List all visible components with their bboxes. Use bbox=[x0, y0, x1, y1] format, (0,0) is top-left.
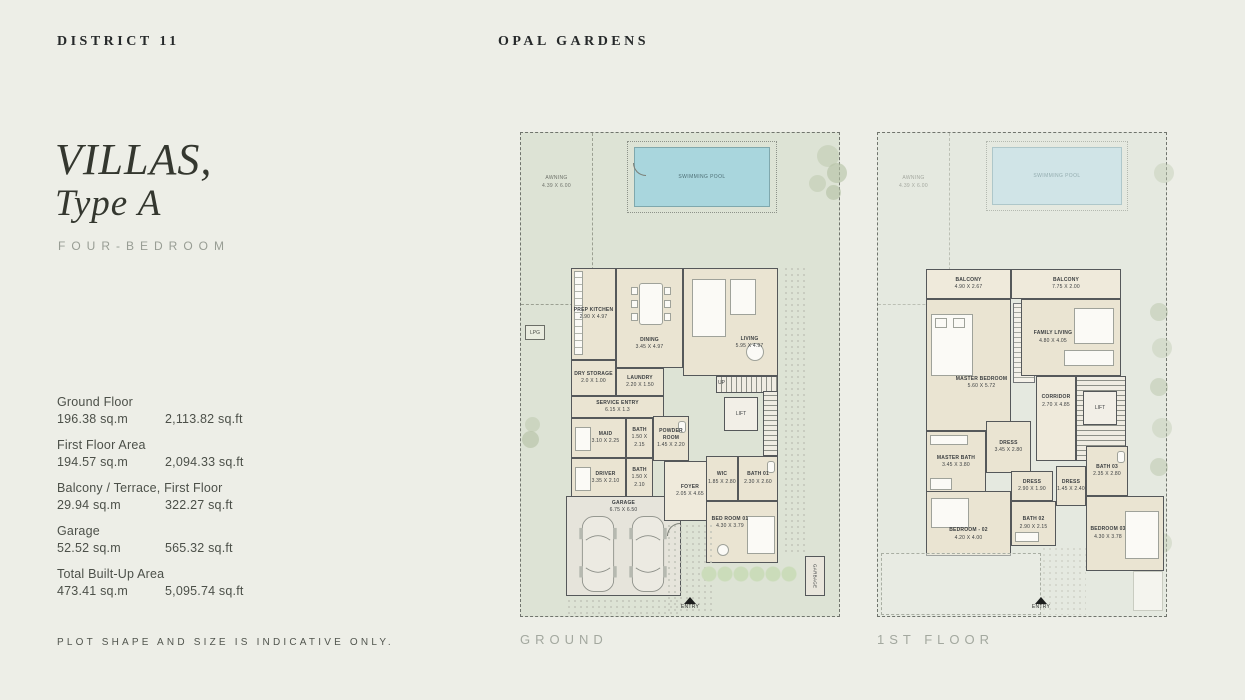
toilet bbox=[1117, 451, 1125, 463]
stairs bbox=[763, 391, 778, 456]
first-floor-caption: 1ST FLOOR bbox=[877, 632, 994, 647]
awning-dim: 4.39 X 6.00 bbox=[542, 183, 571, 189]
room-label: BED ROOM 01 bbox=[712, 516, 749, 523]
tree-icon bbox=[525, 417, 540, 432]
room-bath03: BATH 032.35 X 2.80 bbox=[1086, 446, 1128, 496]
room-dim: 1.50 X 2.10 bbox=[627, 474, 652, 489]
room-dim: 4.80 X 4.05 bbox=[1034, 338, 1072, 345]
room-dim: 7.75 X 2.00 bbox=[1052, 284, 1080, 291]
lift: LIFT bbox=[724, 397, 758, 431]
sofa bbox=[692, 279, 726, 337]
room-bedroom01: BED ROOM 014.30 X 3.79 bbox=[706, 501, 778, 563]
tree-icon bbox=[809, 175, 826, 192]
room-dim: 3.45 X 4.97 bbox=[636, 344, 664, 351]
room-label: SERVICE ENTRY bbox=[596, 400, 639, 407]
room-dress-master: DRESS3.45 X 2.80 bbox=[986, 421, 1031, 473]
room-dim: 1.45 X 2.40 bbox=[1057, 486, 1085, 493]
room-label: BALCONY bbox=[955, 277, 983, 284]
lift: LIFT bbox=[1083, 391, 1117, 425]
room-dim: 6.15 X 1.3 bbox=[596, 407, 639, 414]
room-label: LAUNDRY bbox=[626, 375, 654, 382]
room-bath01: BATH 012.30 X 2.60 bbox=[738, 456, 778, 501]
room-bedroom03: BEDROOM 034.30 X 3.78 bbox=[1086, 496, 1164, 571]
terrace-zone bbox=[881, 553, 1041, 615]
room-dim: 2.0 X 1.00 bbox=[574, 378, 613, 385]
room-bath02: BATH 022.90 X 2.15 bbox=[1011, 501, 1056, 546]
room-dim: 2.90 X 2.15 bbox=[1020, 524, 1048, 531]
swimming-pool-faded: SWIMMING POOL bbox=[992, 147, 1122, 205]
room-wic: WIC1.85 X 2.80 bbox=[706, 456, 738, 501]
room-balcony-right: BALCONY7.75 X 2.00 bbox=[1011, 269, 1121, 299]
room-label: BALCONY bbox=[1052, 277, 1080, 284]
room-label: DRESS bbox=[1018, 479, 1046, 486]
area-sqft: 2,113.82 sq.ft bbox=[165, 412, 243, 426]
entry-arrow-icon bbox=[684, 597, 696, 604]
stairs-up-label: UP bbox=[718, 380, 725, 386]
sofa bbox=[730, 279, 756, 315]
entry-label: ENTRY bbox=[1026, 604, 1056, 610]
disclaimer-note: PLOT SHAPE AND SIZE IS INDICATIVE ONLY. bbox=[57, 637, 394, 648]
dining-chair bbox=[631, 313, 638, 321]
room-master-bedroom: MASTER BEDROOM5.60 X 5.72 bbox=[926, 299, 1011, 431]
area-sqm: 29.94 sq.m bbox=[57, 497, 165, 514]
room-label: LIVING bbox=[736, 336, 764, 343]
dining-chair bbox=[664, 313, 671, 321]
area-label: Ground Floor bbox=[57, 394, 387, 411]
room-laundry: LAUNDRY2.20 X 1.50 bbox=[616, 368, 664, 396]
room-living: LIVING5.95 X 4.97 bbox=[683, 268, 778, 376]
bedroom-subtitle: FOUR-BEDROOM bbox=[58, 239, 230, 253]
room-label: BATH 01 bbox=[744, 471, 772, 478]
swimming-pool: SWIMMING POOL bbox=[634, 147, 770, 207]
awning-label: AWNING bbox=[545, 175, 567, 181]
driveway bbox=[566, 598, 681, 616]
roof-pad bbox=[1133, 571, 1163, 611]
room-master-bath: MASTER BATH3.45 X 3.80 bbox=[926, 431, 986, 493]
dining-chair bbox=[664, 300, 671, 308]
room-bath-maid: BATH1.50 X 2.15 bbox=[626, 418, 653, 458]
room-label: BATH bbox=[627, 427, 652, 434]
dining-table bbox=[639, 283, 663, 325]
tv-console bbox=[1064, 350, 1114, 366]
room-maid: MAID3.10 X 2.25 bbox=[571, 418, 626, 458]
room-label: MASTER BEDROOM bbox=[956, 376, 1007, 383]
tree-icon bbox=[827, 163, 847, 183]
room-dim: 3.35 X 2.10 bbox=[592, 478, 620, 485]
room-corridor: CORRIDOR2.70 X 4.85 bbox=[1036, 376, 1076, 461]
area-sqm: 196.38 sq.m bbox=[57, 411, 165, 428]
area-group-ground: Ground Floor 196.38 sq.m2,113.82 sq.ft bbox=[57, 394, 387, 428]
tree-icon bbox=[1152, 418, 1172, 438]
chair bbox=[717, 544, 729, 556]
room-service-entry: SERVICE ENTRY6.15 X 1.3 bbox=[571, 396, 664, 418]
pillow bbox=[935, 318, 947, 328]
awning-label: AWNING bbox=[902, 175, 924, 181]
garbage-label: GARBAGE bbox=[813, 564, 818, 588]
room-dim: 3.45 X 2.80 bbox=[995, 447, 1023, 454]
villa-title: VILLAS, Type A bbox=[55, 138, 212, 226]
room-dim: 4.90 X 2.67 bbox=[955, 284, 983, 291]
room-dress-02: DRESS2.90 X 1.90 bbox=[1011, 471, 1053, 501]
room-dim: 1.50 X 2.15 bbox=[627, 434, 652, 449]
first-floor-plan: AWNING 4.39 X 6.00 SWIMMING POOL BALCONY… bbox=[877, 132, 1167, 617]
car-icon bbox=[627, 514, 669, 594]
tree-icon bbox=[826, 185, 841, 200]
area-summary: Ground Floor 196.38 sq.m2,113.82 sq.ft F… bbox=[57, 394, 387, 609]
tree-icon bbox=[1152, 338, 1172, 358]
room-balcony-left: BALCONY4.90 X 2.67 bbox=[926, 269, 1011, 299]
area-group-balcony: Balcony / Terrace, First Floor 29.94 sq.… bbox=[57, 480, 387, 514]
area-sqft: 565.32 sq.ft bbox=[165, 541, 233, 555]
room-label: GARAGE bbox=[610, 500, 638, 507]
room-label: MASTER BATH bbox=[937, 455, 975, 462]
room-label: POWDER ROOM bbox=[654, 428, 688, 443]
room-dim: 2.30 X 2.60 bbox=[744, 479, 772, 486]
room-dim: 1.45 X 2.20 bbox=[654, 442, 688, 449]
bed bbox=[747, 516, 775, 554]
lift-label: LIFT bbox=[736, 411, 746, 417]
area-sqft: 322.27 sq.ft bbox=[165, 498, 233, 512]
area-sqft: 5,095.74 sq.ft bbox=[165, 584, 244, 598]
room-label: WIC bbox=[708, 471, 736, 478]
room-driver: DRIVER3.35 X 2.10 bbox=[571, 458, 626, 498]
tree-icon bbox=[1150, 458, 1168, 476]
room-dim: 4.30 X 3.79 bbox=[712, 523, 749, 530]
pillow bbox=[953, 318, 965, 328]
pool-label: SWIMMING POOL bbox=[678, 174, 725, 180]
vanity bbox=[1015, 532, 1039, 542]
area-sqft: 2,094.33 sq.ft bbox=[165, 455, 244, 469]
room-bath-driver: BATH1.50 X 2.10 bbox=[626, 458, 653, 498]
area-sqm: 52.52 sq.m bbox=[57, 540, 165, 557]
area-group-first: First Floor Area 194.57 sq.m2,094.33 sq.… bbox=[57, 437, 387, 471]
room-label: DRESS bbox=[995, 440, 1023, 447]
room-dim: 6.75 X 6.50 bbox=[610, 507, 638, 514]
room-label: DINING bbox=[636, 337, 664, 344]
entry-label: ENTRY bbox=[675, 604, 705, 610]
ground-floor-plan: AWNING 4.39 X 6.00 SWIMMING POOL PREP KI… bbox=[520, 132, 840, 617]
dining-chair bbox=[631, 300, 638, 308]
entry-marker: ENTRY bbox=[1026, 597, 1056, 610]
room-label: DRIVER bbox=[592, 471, 620, 478]
room-dim: 2.20 X 1.50 bbox=[626, 382, 654, 389]
tree-icon bbox=[1150, 303, 1168, 321]
entry-marker: ENTRY bbox=[675, 597, 705, 610]
room-label: DRESS bbox=[1057, 479, 1085, 486]
room-dim: 2.90 X 4.97 bbox=[574, 314, 614, 321]
area-group-total: Total Built-Up Area 473.41 sq.m5,095.74 … bbox=[57, 566, 387, 600]
room-dry-storage: DRY STORAGE2.0 X 1.00 bbox=[571, 360, 616, 396]
room-label: FOYER bbox=[676, 484, 704, 491]
room-label: PREP KITCHEN bbox=[574, 307, 614, 314]
room-label: BEDROOM - 02 bbox=[949, 527, 988, 534]
room-label: BEDROOM 03 bbox=[1090, 526, 1125, 533]
area-group-garage: Garage 52.52 sq.m565.32 sq.ft bbox=[57, 523, 387, 557]
room-label: BATH bbox=[627, 467, 652, 474]
room-family-living: FAMILY LIVING4.80 X 4.05 bbox=[1021, 299, 1121, 376]
room-dining: DINING3.45 X 4.97 bbox=[616, 268, 683, 368]
area-sqm: 473.41 sq.m bbox=[57, 583, 165, 600]
area-label: Total Built-Up Area bbox=[57, 566, 387, 583]
car-icon bbox=[577, 514, 619, 594]
lpg-label: LPG bbox=[530, 330, 540, 336]
room-dim: 4.30 X 3.78 bbox=[1090, 534, 1125, 541]
tree-icon bbox=[522, 431, 539, 448]
area-label: First Floor Area bbox=[57, 437, 387, 454]
walkway-paving bbox=[783, 266, 805, 556]
villa-title-line2: Type A bbox=[55, 182, 212, 226]
bed bbox=[931, 498, 969, 528]
room-powder: POWDER ROOM1.45 X 2.20 bbox=[653, 416, 689, 461]
room-bedroom02: BEDROOM - 024.20 X 4.00 bbox=[926, 491, 1011, 556]
villa-title-line1: VILLAS, bbox=[55, 138, 212, 182]
brand-title: DISTRICT 11 bbox=[57, 34, 180, 50]
area-label: Garage bbox=[57, 523, 387, 540]
room-prep-kitchen: PREP KITCHEN2.90 X 4.97 bbox=[571, 268, 616, 360]
room-label: CORRIDOR bbox=[1042, 394, 1071, 401]
room-label: BATH 02 bbox=[1020, 516, 1048, 523]
room-dim: 4.20 X 4.00 bbox=[949, 535, 988, 542]
room-label: MAID bbox=[592, 431, 620, 438]
room-dim: 5.60 X 5.72 bbox=[956, 383, 1007, 390]
pool-label: SWIMMING POOL bbox=[1033, 173, 1080, 179]
lpg-store: LPG bbox=[525, 325, 545, 340]
room-dim: 3.45 X 3.80 bbox=[937, 462, 975, 469]
room-dim: 2.90 X 1.90 bbox=[1018, 486, 1046, 493]
ground-caption: GROUND bbox=[520, 632, 608, 647]
bed bbox=[575, 427, 591, 451]
entry-arrow-icon bbox=[1035, 597, 1047, 604]
bed bbox=[1125, 511, 1159, 559]
area-label: Balcony / Terrace, First Floor bbox=[57, 480, 387, 497]
project-title: OPAL GARDENS bbox=[498, 34, 649, 50]
room-dim: 1.85 X 2.80 bbox=[708, 479, 736, 486]
room-dim: 2.70 X 4.85 bbox=[1042, 402, 1071, 409]
tree-icon bbox=[1150, 378, 1168, 396]
bathtub bbox=[930, 478, 952, 490]
room-label: BATH 03 bbox=[1093, 464, 1121, 471]
area-sqm: 194.57 sq.m bbox=[57, 454, 165, 471]
awning-dim: 4.39 X 6.00 bbox=[899, 183, 928, 189]
tree-icon bbox=[1154, 163, 1174, 183]
vanity bbox=[930, 435, 968, 445]
dining-chair bbox=[664, 287, 671, 295]
room-label: FAMILY LIVING bbox=[1034, 330, 1072, 337]
room-dress-03: DRESS1.45 X 2.40 bbox=[1056, 466, 1086, 506]
room-dim: 5.95 X 4.97 bbox=[736, 343, 764, 350]
hedge bbox=[701, 566, 797, 582]
bed bbox=[575, 467, 591, 491]
room-dim: 3.10 X 2.25 bbox=[592, 438, 620, 445]
room-label: DRY STORAGE bbox=[574, 371, 613, 378]
dining-chair bbox=[631, 287, 638, 295]
lift-label: LIFT bbox=[1095, 405, 1105, 411]
room-dim: 2.05 X 4.65 bbox=[676, 491, 704, 498]
brochure-page: DISTRICT 11 OPAL GARDENS VILLAS, Type A … bbox=[0, 0, 1245, 700]
garbage-room: GARBAGE bbox=[805, 556, 825, 596]
sofa bbox=[1074, 308, 1114, 344]
room-dim: 2.35 X 2.80 bbox=[1093, 471, 1121, 478]
